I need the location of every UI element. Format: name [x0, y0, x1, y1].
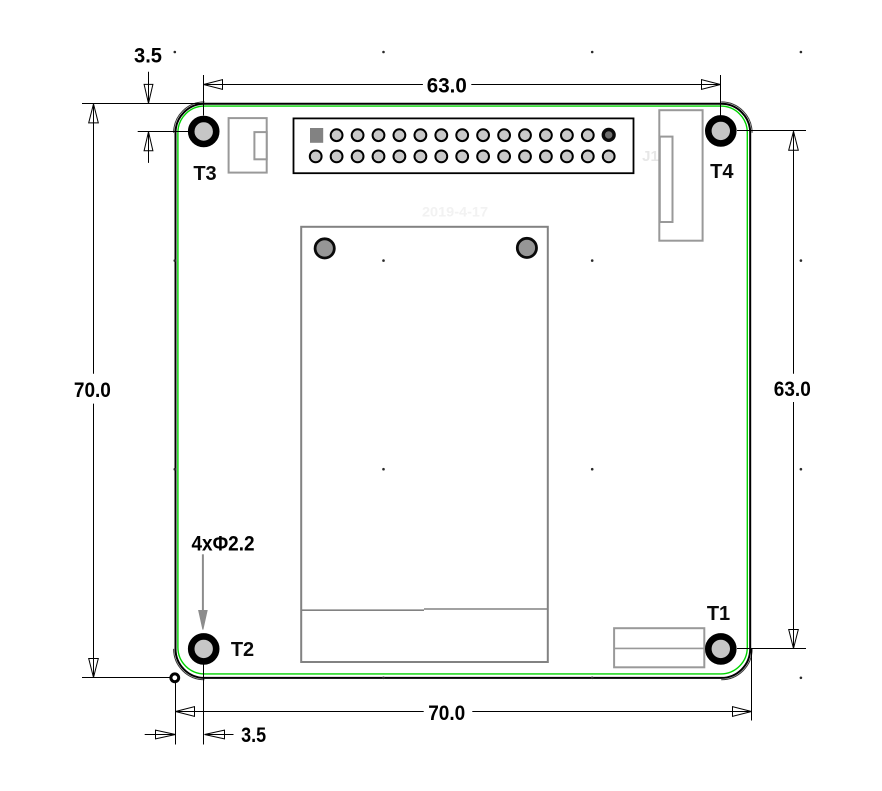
svg-text:T2: T2 [231, 639, 254, 661]
svg-text:T1: T1 [707, 603, 730, 625]
svg-text:3.5: 3.5 [134, 44, 162, 68]
svg-text:4xΦ2.2: 4xΦ2.2 [192, 531, 255, 555]
svg-text:T4: T4 [710, 161, 734, 183]
svg-text:63.0: 63.0 [774, 377, 811, 401]
svg-text:2019-4-17: 2019-4-17 [422, 204, 488, 220]
svg-text:J1: J1 [642, 148, 659, 165]
svg-text:3.5: 3.5 [241, 723, 266, 747]
svg-text:T3: T3 [193, 163, 216, 185]
svg-text:63.0: 63.0 [427, 74, 467, 98]
svg-text:70.0: 70.0 [74, 378, 111, 402]
svg-text:70.0: 70.0 [428, 701, 465, 725]
